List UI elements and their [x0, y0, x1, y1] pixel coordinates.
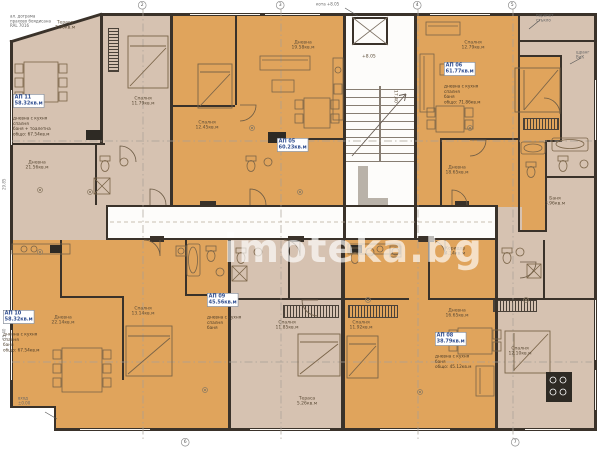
window — [80, 428, 150, 431]
apartment-region-br — [497, 240, 597, 430]
wall-pier — [418, 236, 434, 242]
wall — [235, 13, 237, 105]
wall — [518, 13, 520, 57]
apartment-details: дневна с кухня спалня баня общо: 67.54кв… — [3, 332, 39, 353]
wall — [170, 13, 173, 207]
annotation: кота +8.05 — [316, 2, 339, 7]
floor-plan: АП 1158.32кв.м дневна с кухня спалня бан… — [0, 0, 600, 450]
wall — [100, 13, 103, 145]
room-label: Спалня12.79кв.м — [448, 40, 498, 50]
room-label: Спалня13.14кв.м — [118, 306, 168, 316]
room-label: Баня3.96кв.м — [530, 196, 580, 206]
room-area: 21.56кв.м — [12, 165, 62, 170]
room-label: Спалня12.10кв.м — [495, 346, 545, 356]
apartment-label-box: АП 0661.77кв.м — [444, 62, 475, 75]
apartment-region-ap11 — [10, 13, 173, 207]
dimension-label: 15.40 — [2, 329, 7, 340]
wall — [547, 176, 595, 178]
wardrobe-hatch — [108, 28, 119, 72]
apartment-label-box: АП 1058.32кв.м — [3, 310, 34, 323]
apartment-label: АП 0661.77кв.м — [444, 62, 475, 75]
wall-pier — [455, 201, 469, 207]
room-label: Спалня11.79кв.м — [118, 96, 168, 106]
room-area: 16.65кв.м — [432, 313, 482, 318]
room-area: 11.85кв.м — [262, 325, 312, 330]
apartment-number: АП 11 — [15, 95, 32, 101]
annotation: щранг ВиК — [576, 50, 589, 60]
room-label: Спалня11.85кв.м — [262, 320, 312, 330]
wall — [518, 55, 562, 57]
window — [10, 250, 13, 310]
wall — [520, 40, 596, 42]
elevator-shaft — [352, 17, 388, 45]
room-label: Коридор4.14кв.м — [430, 246, 480, 256]
wardrobe-hatch — [493, 300, 537, 312]
apartment-label-box: АП 0560.23кв.м — [277, 138, 308, 151]
wall — [545, 140, 547, 232]
wall — [341, 240, 345, 430]
apartment-label-box: АП 0945.56кв.м — [207, 293, 238, 306]
room-area: 5.26кв.м — [282, 401, 332, 406]
room-area: 18.65кв.м — [432, 170, 482, 175]
apartment-label-box: АП 1158.32кв.м — [13, 94, 44, 107]
wall — [173, 105, 235, 107]
apartment-number: АП 10 — [5, 311, 22, 317]
room-label: Спалня12.45кв.м — [182, 120, 232, 130]
apartment-region-ap06-bath — [520, 140, 547, 232]
apartment-area: 58.32кв.м — [15, 101, 43, 107]
room-area: 13.14кв.м — [118, 311, 168, 316]
apartment-label: АП 1058.32кв.м — [3, 310, 34, 323]
wardrobe-hatch — [283, 305, 339, 318]
room-label: Дневна19.58кв.м — [278, 40, 328, 50]
apartment-area: 58.32кв.м — [5, 317, 33, 323]
wardrobe-hatch — [348, 305, 398, 318]
wall — [520, 230, 547, 232]
wall — [518, 55, 520, 232]
apartment-region-ap08 — [343, 240, 497, 430]
apartment-details: дневна с кухня спалня баня общо: 71.86кв… — [444, 84, 480, 105]
room-area: 4.14кв.м — [430, 251, 480, 256]
wall-pier — [288, 236, 304, 242]
apartment-region-ap11-lower — [10, 205, 108, 240]
apartment-region-ap10 — [10, 240, 230, 430]
annotation: вход ±0.00 — [18, 396, 30, 406]
room-label: Дневна21.56кв.м — [12, 160, 62, 170]
wall — [594, 13, 597, 431]
wall — [106, 205, 108, 240]
wall — [547, 140, 562, 142]
apartment-area: 61.77кв.м — [446, 69, 474, 75]
wall — [60, 240, 62, 298]
window — [594, 370, 597, 410]
room-label: Дневна22.14кв.м — [38, 315, 88, 325]
window — [594, 80, 597, 140]
room-label: Тераса5.26кв.м — [282, 396, 332, 406]
wall — [343, 298, 409, 300]
window — [525, 428, 570, 431]
wall — [95, 145, 97, 205]
annotation: ал. дограма прахово боядисана RAL 7016 — [10, 14, 51, 28]
apartment-number: АП 05 — [279, 139, 296, 145]
wall-pier — [200, 201, 216, 207]
axis-bubble: 2 — [138, 1, 146, 9]
wall — [60, 296, 124, 298]
room-area: 12.45кв.м — [182, 125, 232, 130]
wall — [10, 406, 56, 408]
apartment-label: АП 0945.56кв.м — [207, 293, 238, 306]
apartment-number: АП 06 — [446, 63, 463, 69]
elevation-label: +8.05 — [362, 54, 376, 59]
apartment-label: АП 0560.23кв.м — [277, 138, 308, 151]
room-area: 12.10кв.м — [495, 351, 545, 356]
apartment-number: АП 08 — [437, 333, 454, 339]
apartment-number: АП 09 — [209, 294, 226, 300]
apartment-area: 60.23кв.м — [279, 145, 307, 151]
wall — [543, 240, 545, 300]
wall — [185, 240, 187, 296]
room-area: 11.92кв.м — [336, 325, 386, 330]
axis-bubble: 5 — [508, 1, 516, 9]
wall — [560, 55, 562, 142]
apartment-label-box: АП 0838.79кв.м — [435, 332, 466, 345]
stair-divider — [379, 86, 381, 162]
room-area: 3.96кв.м — [530, 201, 580, 206]
wardrobe-hatch — [523, 118, 559, 130]
apartment-details: дневна с кухня спалня баня + тоалетна об… — [13, 116, 51, 137]
wall — [10, 143, 105, 145]
wall — [288, 240, 290, 300]
wall — [497, 298, 597, 300]
wall — [231, 298, 341, 300]
axis-bubble: 6 — [181, 438, 189, 446]
room-area: 19.58кв.м — [278, 45, 328, 50]
wall — [495, 207, 498, 430]
apartment-details: дневна с кухня спалня баня — [207, 315, 241, 331]
window — [380, 428, 450, 431]
room-label: Дневна18.65кв.м — [432, 165, 482, 175]
wall — [228, 240, 231, 430]
entrance-notch — [10, 408, 54, 431]
annotation: парапет стъкло — [536, 13, 553, 23]
apartment-area: 45.56кв.м — [209, 300, 237, 306]
wall — [440, 138, 518, 140]
axis-bubble: 3 — [276, 1, 284, 9]
wall — [54, 406, 56, 431]
axis-bubble: 7 — [511, 438, 519, 446]
stair-dimension-label: 17.40 — [393, 90, 398, 103]
room-label: Спалня11.92кв.м — [336, 320, 386, 330]
window — [250, 428, 330, 431]
wall — [428, 298, 497, 300]
room-area: 12.79кв.м — [448, 45, 498, 50]
apartment-area: 38.79кв.м — [437, 339, 465, 345]
window — [430, 13, 490, 16]
window — [594, 300, 597, 360]
wall-pier — [150, 236, 164, 242]
apartment-label: АП 1158.32кв.м — [13, 94, 44, 107]
room-area: 22.14кв.м — [38, 320, 88, 325]
wall — [100, 13, 597, 16]
window — [190, 13, 260, 16]
apartment-label: АП 0838.79кв.м — [435, 332, 466, 345]
axis-bubble: 4 — [413, 1, 421, 9]
window — [265, 13, 320, 16]
room-area: 11.79кв.м — [118, 101, 168, 106]
room-label: Дневна16.65кв.м — [432, 308, 482, 318]
dimension-label: 29.85 — [2, 179, 7, 190]
apartment-details: дневна с кухня баня общо: 45.12кв.м — [435, 354, 471, 370]
